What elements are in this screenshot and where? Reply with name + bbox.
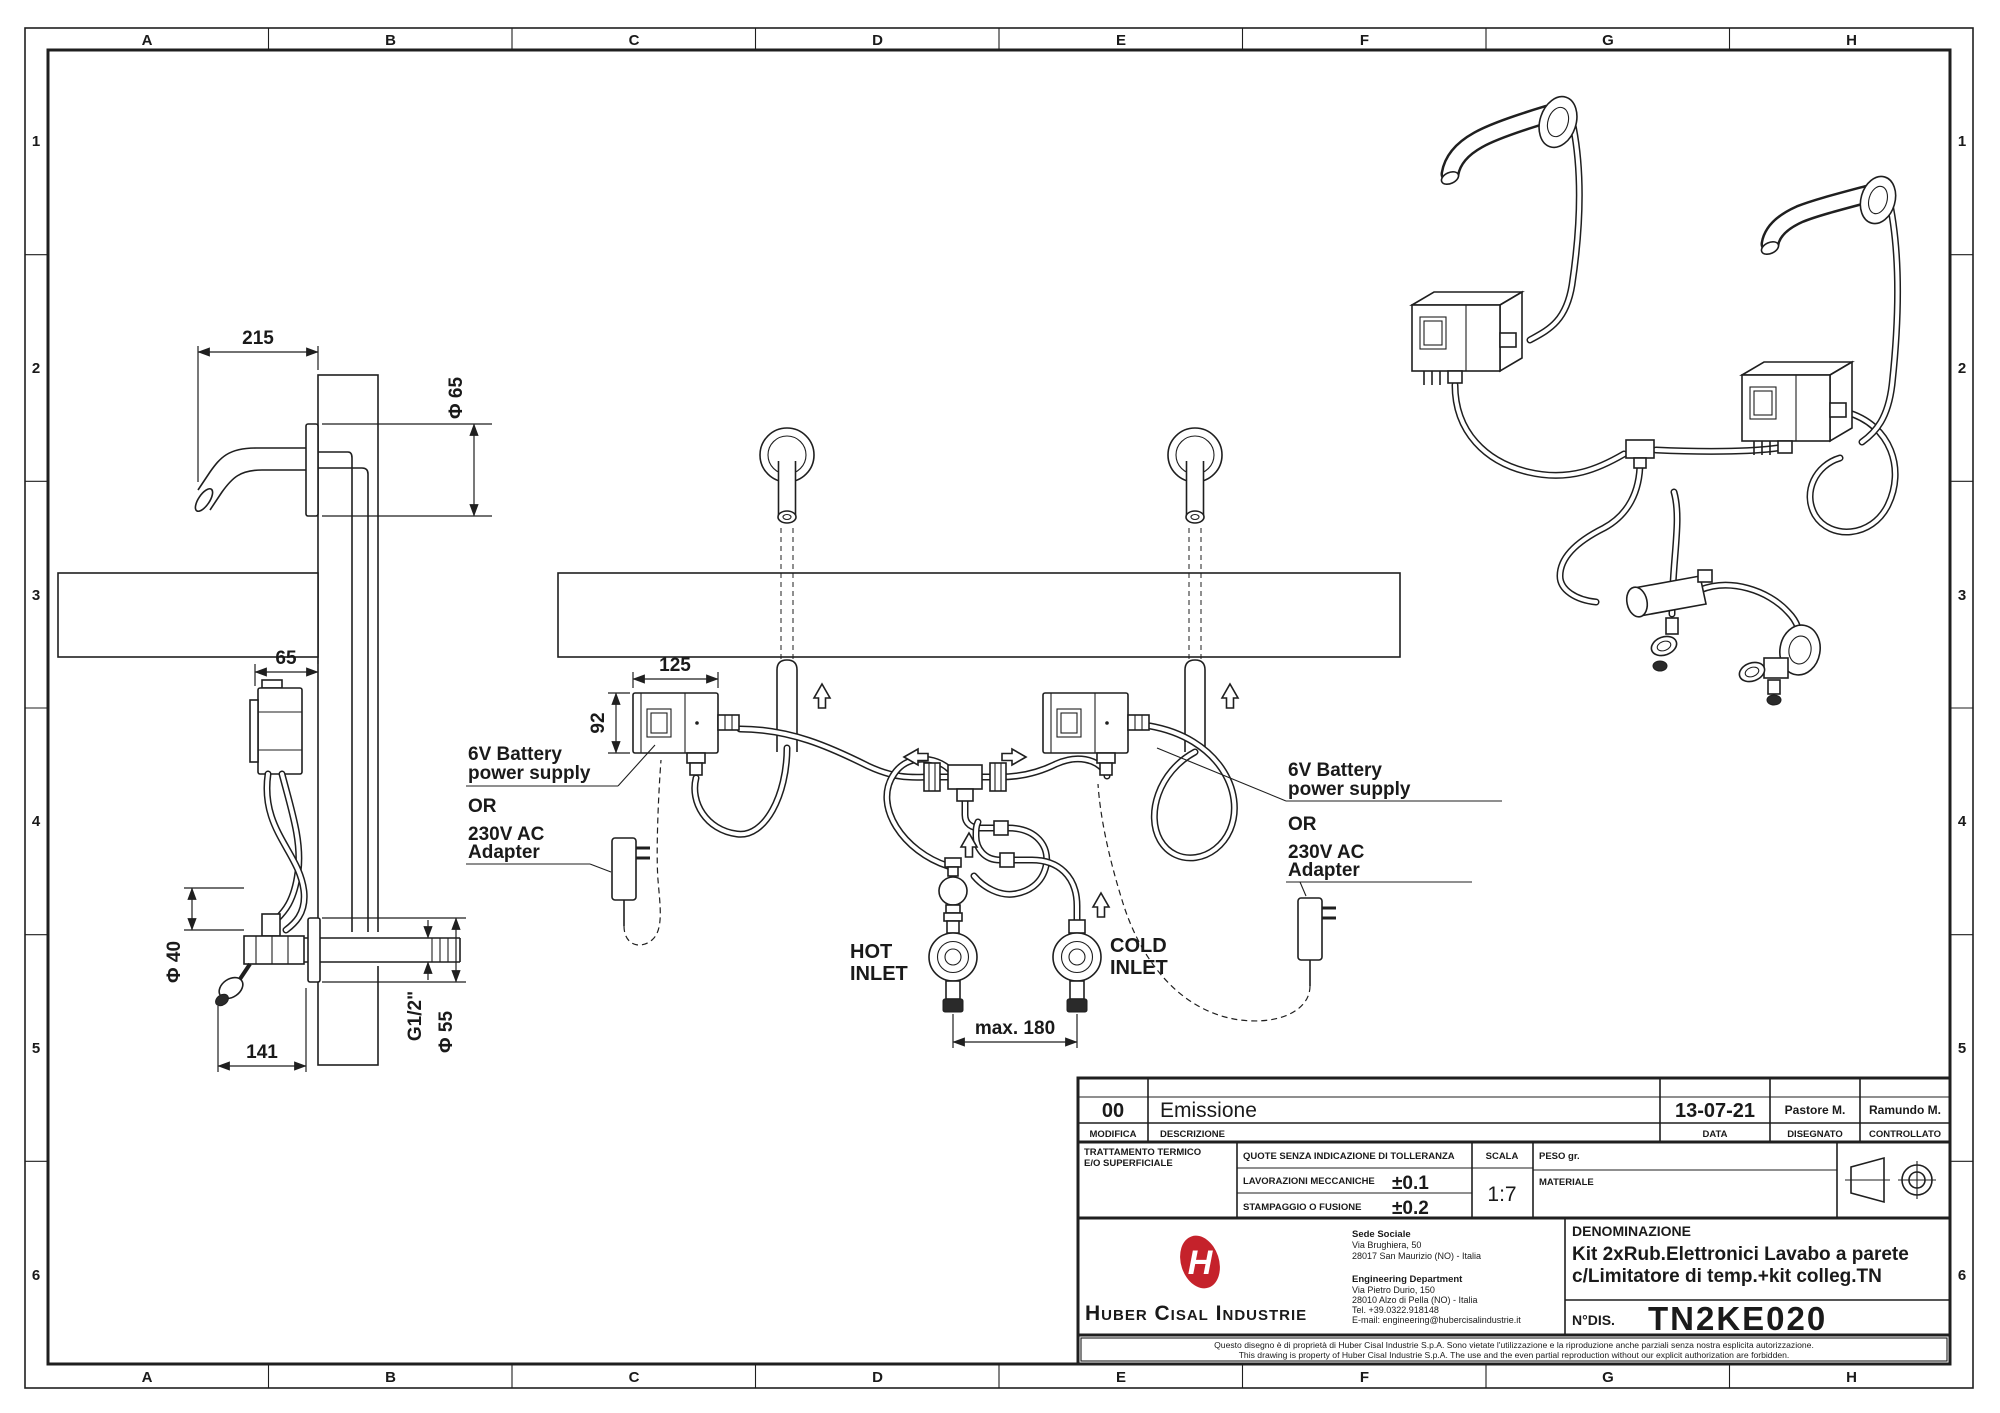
dim-text-141: 141 xyxy=(246,1042,278,1063)
power-cable-right xyxy=(1098,784,1310,1021)
grid-label: D xyxy=(872,1369,883,1386)
spout-front-left xyxy=(760,428,814,523)
technical-drawing-sheet: A B C D E F G H A B C D E F G H 1 2 3 4 … xyxy=(0,0,2000,1413)
grid-label: G xyxy=(1602,1369,1614,1386)
materiale-label: MATERIALE xyxy=(1539,1177,1594,1188)
eng-title: Engineering Department xyxy=(1352,1274,1463,1285)
grid-label: 1 xyxy=(32,133,40,150)
front-hoses xyxy=(695,726,1235,933)
scala-value: 1:7 xyxy=(1487,1183,1516,1206)
iso-valve-body xyxy=(1764,658,1788,678)
eng-addr1: Via Pietro Durio, 150 xyxy=(1352,1285,1435,1295)
iso-spout-1 xyxy=(1440,92,1584,187)
label-controllato: CONTROLLATO xyxy=(1869,1129,1941,1140)
grid-label: 4 xyxy=(32,813,41,830)
label-modifica: MODIFICA xyxy=(1090,1129,1137,1140)
temperature-limiter xyxy=(939,858,967,933)
dim-141: 141 xyxy=(218,988,306,1072)
grid-label: D xyxy=(872,32,883,49)
grid-label: C xyxy=(629,32,640,49)
disclaimer-italian: Questo disegno è di proprietà di Huber C… xyxy=(1214,1340,1814,1350)
side-view: 215 Φ 65 65 xyxy=(58,328,492,1072)
hot-inlet-label2: INLET xyxy=(850,963,908,985)
dim-text-g12: G1/2" xyxy=(405,991,426,1041)
dim-125: 125 xyxy=(633,655,718,688)
hot-inlet-label: HOT xyxy=(850,941,892,963)
company-name: Huber Cisal Industrie xyxy=(1085,1302,1307,1325)
denominazione-line1: Kit 2xRub.Elettronici Lavabo a parete xyxy=(1572,1244,1909,1265)
grid-label: 3 xyxy=(32,587,40,604)
tolerance-cast-value: ±0.2 xyxy=(1392,1198,1429,1219)
cold-inlet-label: COLD xyxy=(1110,935,1167,957)
hq-title: Sede Sociale xyxy=(1352,1229,1411,1240)
iso-tee xyxy=(1626,440,1654,468)
label-descrizione: DESCRIZIONE xyxy=(1160,1129,1225,1140)
label-disegnato: DISEGNATO xyxy=(1787,1129,1843,1140)
iso-electronic-box-2 xyxy=(1742,362,1852,455)
dim-text-max180: max. 180 xyxy=(975,1018,1055,1039)
cold-inlet-flange xyxy=(1053,933,1101,1012)
dim-text-125: 125 xyxy=(659,655,691,676)
checked-by: Ramundo M. xyxy=(1869,1103,1941,1117)
iso-electronic-box-1 xyxy=(1412,292,1522,385)
spout-side xyxy=(192,424,318,516)
iso-valve-knob-1 xyxy=(1649,633,1680,659)
eng-tel: Tel. +39.0322.918148 xyxy=(1352,1305,1439,1315)
dim-92: 92 xyxy=(588,693,630,753)
grid-label: F xyxy=(1360,1369,1369,1386)
eng-addr2: 28010 Alzo di Pella (NO) - Italia xyxy=(1352,1295,1478,1305)
grid-label: A xyxy=(142,1369,153,1386)
denominazione-label: DENOMINAZIONE xyxy=(1572,1223,1691,1239)
grid-label: 4 xyxy=(1958,813,1967,830)
power-supply-left: 6V Battery power supply OR 230V AC Adapt… xyxy=(466,744,661,945)
denominazione-line2: c/Limitatore di temp.+kit colleg.TN xyxy=(1572,1266,1882,1287)
grid-label: C xyxy=(629,1369,640,1386)
cold-riser-fitting xyxy=(1069,920,1085,933)
grid-label: G xyxy=(1602,32,1614,49)
side-hoses xyxy=(267,774,304,930)
revision-number: 00 xyxy=(1102,1100,1124,1122)
tolerance-header: QUOTE SENZA INDICAZIONE DI TOLLERANZA xyxy=(1243,1151,1455,1162)
grid-label: E xyxy=(1116,32,1126,49)
grid-label: F xyxy=(1360,32,1369,49)
grid-label: B xyxy=(385,1369,396,1386)
grid-label: 1 xyxy=(1958,133,1966,150)
battery-label: 6V Battery xyxy=(468,744,562,765)
grid-label: 5 xyxy=(1958,1040,1966,1057)
ac-adapter-left xyxy=(612,838,650,926)
adapter-label2: Adapter xyxy=(468,842,540,863)
scala-label: SCALA xyxy=(1486,1151,1519,1162)
dim-text-phi65: Φ 65 xyxy=(446,377,467,419)
tolerance-cast-label: STAMPAGGIO O FUSIONE xyxy=(1243,1202,1361,1213)
grid-label: H xyxy=(1846,32,1857,49)
grid-label: B xyxy=(385,32,396,49)
ndis-label: N°DIS. xyxy=(1572,1312,1615,1328)
isometric-view xyxy=(1412,92,1901,705)
flow-up-arrow xyxy=(1222,684,1238,708)
hq-addr1: Via Brughiera, 50 xyxy=(1352,1240,1421,1250)
counter-slab-front xyxy=(558,573,1400,657)
first-angle-projection-icon xyxy=(1845,1158,1936,1202)
drawing-number: TN2KE020 xyxy=(1648,1300,1827,1337)
cold-inlet-label2: INLET xyxy=(1110,957,1168,979)
grid-label: 2 xyxy=(1958,360,1966,377)
or-label: OR xyxy=(1288,814,1317,835)
tolerance-mech-value: ±0.1 xyxy=(1392,1173,1429,1194)
eng-email: E-mail: engineering@hubercisalindustrie.… xyxy=(1352,1315,1521,1325)
grid-label: 2 xyxy=(32,360,40,377)
grid-label: 3 xyxy=(1958,587,1966,604)
hot-inlet-flange xyxy=(929,933,977,1012)
disclaimer-english: This drawing is property of Huber Cisal … xyxy=(1239,1350,1790,1360)
counter-slab-side xyxy=(58,573,318,657)
grid-label: H xyxy=(1846,1369,1857,1386)
battery-label: 6V Battery xyxy=(1288,760,1382,781)
hq-addr2: 28017 San Maurizio (NO) - Italia xyxy=(1352,1251,1481,1261)
adapter-label2: Adapter xyxy=(1288,860,1360,881)
grid-label: 6 xyxy=(32,1267,40,1284)
dim-text-65: 65 xyxy=(275,648,297,669)
revision-description: Emissione xyxy=(1160,1099,1257,1122)
dim-text-215: 215 xyxy=(242,328,274,349)
flow-up-arrow xyxy=(1093,893,1109,917)
iso-valve-knob-2 xyxy=(1737,659,1768,685)
grid-label: A xyxy=(142,32,153,49)
ac-adapter-right xyxy=(1298,898,1336,986)
battery-label2: power supply xyxy=(1288,779,1411,800)
tolerance-mech-label: LAVORAZIONI MECCANICHE xyxy=(1243,1176,1375,1187)
iso-valve-cap-2 xyxy=(1767,695,1781,705)
treatment-label: TRATTAMENTO TERMICO xyxy=(1084,1147,1201,1158)
grid-label: E xyxy=(1116,1369,1126,1386)
dim-phi40: Φ 40 xyxy=(164,888,244,983)
dim-text-phi55: Φ 55 xyxy=(436,1011,457,1053)
spout-front-right xyxy=(1168,428,1222,523)
drawn-by: Pastore M. xyxy=(1785,1103,1846,1117)
flow-up-arrow xyxy=(814,684,830,708)
treatment-label2: E/O SUPERFICIALE xyxy=(1084,1158,1173,1169)
logo-letter: H xyxy=(1188,1244,1214,1282)
iso-valve-tail xyxy=(1768,680,1780,694)
iso-valve-cap-1 xyxy=(1653,661,1667,671)
dim-text-92: 92 xyxy=(588,712,609,733)
dim-max180: max. 180 xyxy=(953,1014,1077,1048)
grid-label: 6 xyxy=(1958,1267,1966,1284)
battery-label2: power supply xyxy=(468,763,591,784)
electronic-box-left xyxy=(633,693,739,775)
title-block: 00 Emissione 13-07-21 Pastore M. Ramundo… xyxy=(1078,1078,1950,1364)
grid-label: 5 xyxy=(32,1040,40,1057)
label-data: DATA xyxy=(1703,1129,1728,1140)
iso-spout-2 xyxy=(1760,172,1901,256)
dim-text-phi40: Φ 40 xyxy=(164,941,185,983)
iso-temperature-limiter xyxy=(1624,570,1712,634)
front-view: 125 92 HOT INLET COLD INLET xyxy=(466,428,1502,1048)
control-box-side xyxy=(250,680,302,774)
or-label: OR xyxy=(468,796,497,817)
revision-date: 13-07-21 xyxy=(1675,1100,1755,1122)
peso-label: PESO gr. xyxy=(1539,1151,1580,1162)
